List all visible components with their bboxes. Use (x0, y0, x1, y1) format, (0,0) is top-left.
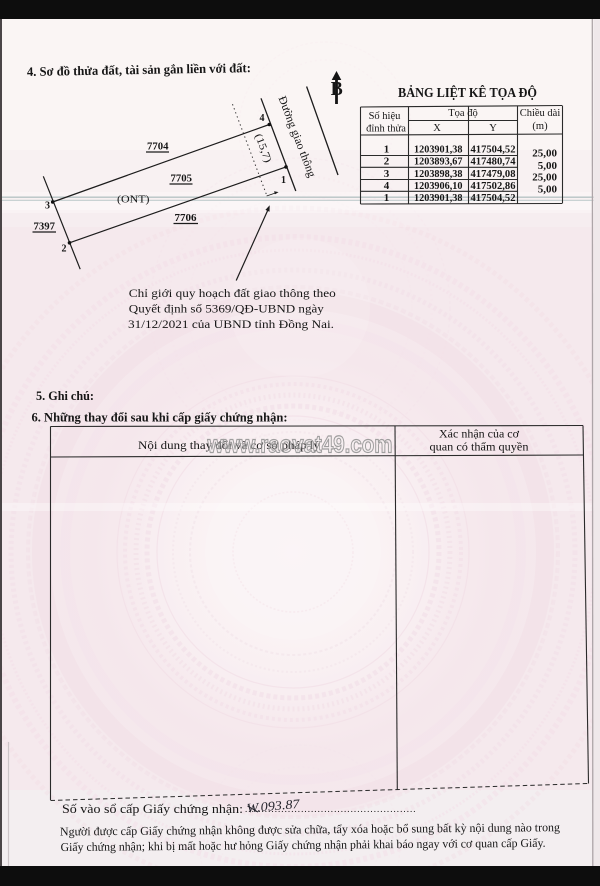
svg-text:417504,52: 417504,52 (471, 144, 516, 156)
svg-text:Tọa độ: Tọa độ (448, 108, 477, 119)
svg-text:417479,08: 417479,08 (471, 168, 516, 180)
svg-text:BẢNG LIỆT KÊ TỌA ĐỘ: BẢNG LIỆT KÊ TỌA ĐỘ (398, 85, 537, 100)
svg-text:7706: 7706 (175, 212, 198, 224)
svg-text:5,00: 5,00 (538, 160, 558, 172)
svg-text:1203901,38: 1203901,38 (414, 144, 463, 156)
svg-text:3: 3 (384, 168, 390, 180)
svg-text:25,00: 25,00 (532, 148, 557, 160)
svg-text:4: 4 (260, 113, 265, 124)
svg-text:1203906,10: 1203906,10 (414, 180, 463, 192)
svg-text:2: 2 (384, 156, 390, 168)
svg-text:quan có thẩm quyền: quan có thẩm quyền (430, 442, 529, 454)
svg-text:Quyết định số 5369/QĐ-UBND ngà: Quyết định số 5369/QĐ-UBND ngày (129, 302, 324, 316)
svg-text:2: 2 (62, 244, 67, 255)
svg-text:5,00: 5,00 (538, 184, 558, 196)
svg-text:1: 1 (281, 175, 286, 186)
svg-text:Số vào sổ cấp Giấy chứng nhận:: Số vào sổ cấp Giấy chứng nhận: (62, 801, 243, 816)
svg-text:7704: 7704 (147, 141, 169, 153)
svg-text:7705: 7705 (171, 173, 193, 185)
svg-text:6. Những thay đổi sau khi cấp: 6. Những thay đổi sau khi cấp giấy chứng… (32, 411, 288, 425)
svg-text:1203898,38: 1203898,38 (414, 168, 463, 180)
svg-text:1: 1 (384, 144, 390, 156)
svg-text:(m): (m) (532, 121, 548, 132)
svg-text:25,00: 25,00 (532, 171, 557, 183)
svg-text:Số hiệu: Số hiệu (369, 111, 402, 122)
svg-text:31/12/2021 của UBND tỉnh Đồng: 31/12/2021 của UBND tỉnh Đồng Nai. (128, 317, 334, 331)
svg-text:3: 3 (45, 201, 50, 212)
svg-text:www.raovat49.com: www.raovat49.com (207, 432, 393, 459)
svg-text:5. Ghi chú:: 5. Ghi chú: (36, 389, 94, 403)
svg-text:Chỉ giới quy hoạch đất giao th: Chỉ giới quy hoạch đất giao thông theo (129, 286, 336, 300)
svg-text:Y: Y (489, 123, 497, 134)
svg-text:đỉnh thửa: đỉnh thửa (366, 124, 406, 135)
svg-text:1203893,67: 1203893,67 (414, 156, 463, 168)
svg-text:1203901,38: 1203901,38 (414, 192, 463, 204)
svg-text:417504,52: 417504,52 (471, 192, 516, 204)
svg-text:4: 4 (384, 180, 390, 192)
svg-text:1: 1 (384, 192, 390, 204)
svg-text:417480,74: 417480,74 (471, 156, 516, 168)
svg-text:Chiều dài: Chiều dài (520, 108, 561, 119)
svg-text:(ONT): (ONT) (117, 194, 150, 206)
svg-text:417502,86: 417502,86 (471, 180, 516, 192)
svg-text:Xác nhận của cơ: Xác nhận của cơ (439, 429, 520, 441)
svg-text:B: B (331, 78, 343, 100)
svg-text:7397: 7397 (34, 221, 56, 233)
svg-text:X: X (433, 123, 441, 134)
